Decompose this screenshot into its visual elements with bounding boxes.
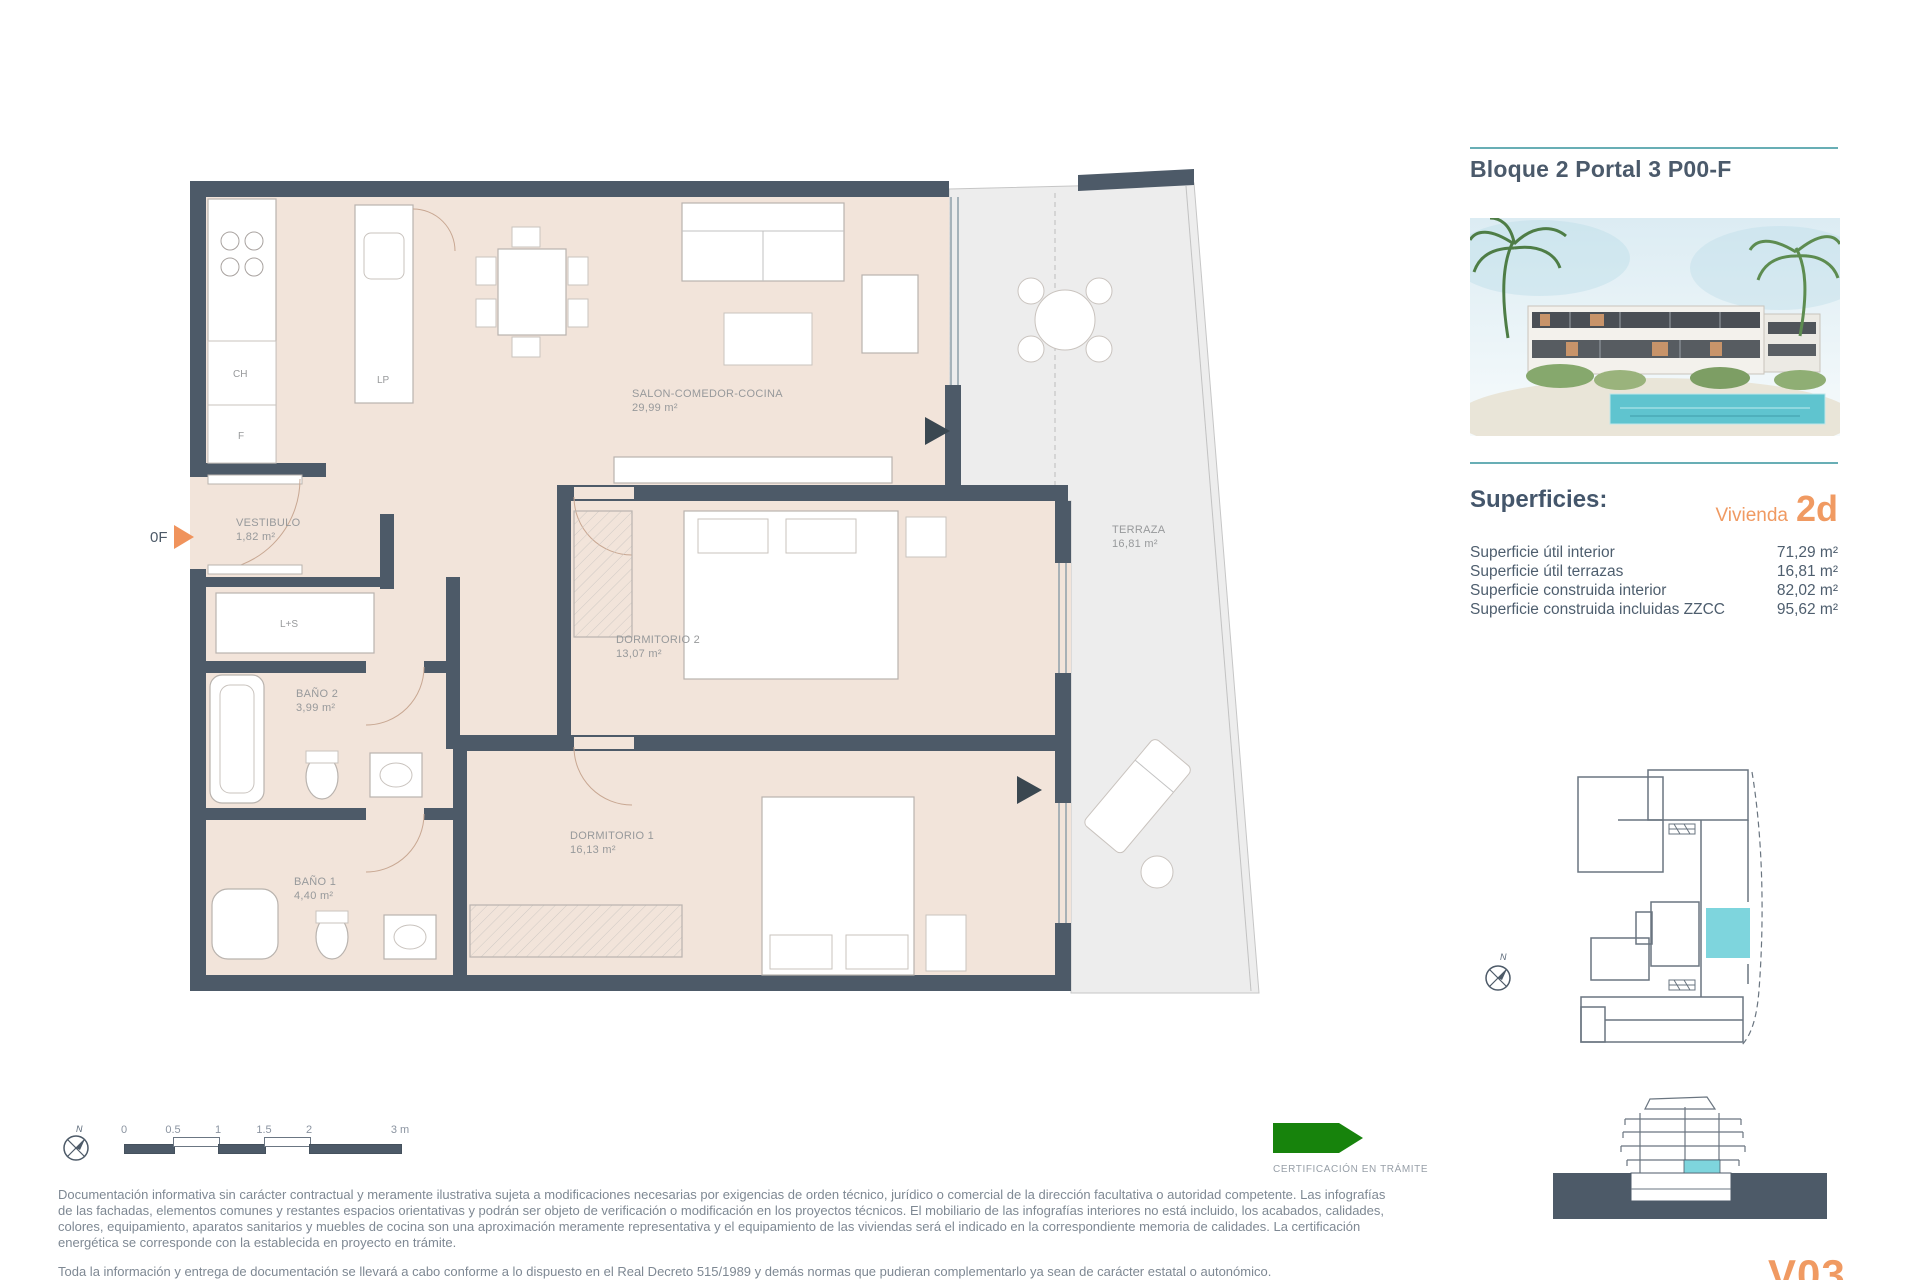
scale-tick: 1.5 bbox=[256, 1124, 271, 1136]
room-area-bath1: 4,40 m² bbox=[294, 890, 333, 902]
superficies-row: Superficie construida interior 82,02 m² bbox=[1470, 581, 1838, 600]
legal-paragraph-1: Documentación informativa sin carácter c… bbox=[58, 1187, 1403, 1251]
sup-value: 95,62 m² bbox=[1777, 600, 1838, 619]
room-label-bath1: BAÑO 1 bbox=[294, 875, 336, 888]
sup-label: Superficie útil interior bbox=[1470, 543, 1615, 562]
brand-logo: V03 bbox=[1768, 1251, 1846, 1280]
vivienda-label: Vivienda bbox=[1715, 505, 1788, 526]
floor-plan-drawing: CH F LP bbox=[150, 145, 1270, 1025]
kitchen-label-lp: LP bbox=[377, 375, 390, 386]
room-label-vestibulo: VESTIBULO bbox=[236, 517, 301, 529]
superficies-row: Superficie construida incluidas ZZCC 95,… bbox=[1470, 600, 1838, 619]
sup-label: Superficie útil terrazas bbox=[1470, 562, 1623, 581]
section-unit-highlight bbox=[1684, 1160, 1720, 1173]
closet-label: L+S bbox=[280, 619, 298, 630]
north-label: N bbox=[1500, 952, 1507, 962]
section-drawing bbox=[1545, 1085, 1835, 1260]
sup-value: 82,02 m² bbox=[1777, 581, 1838, 600]
scale-tick: 0 bbox=[121, 1124, 127, 1136]
room-area-terraza: 16,81 m² bbox=[1112, 538, 1158, 550]
kitchen-label-f: F bbox=[238, 431, 244, 442]
scale-tick: 2 bbox=[306, 1124, 312, 1136]
superficies-header: Superficies: Vivienda2d bbox=[1470, 486, 1838, 514]
north-label: N bbox=[76, 1124, 83, 1134]
legal-paragraph-2: Toda la información y entrega de documen… bbox=[58, 1264, 1403, 1279]
scale-segment bbox=[218, 1144, 266, 1154]
certification-arrow-icon bbox=[1273, 1123, 1365, 1153]
room-area-vestibulo: 1,82 m² bbox=[236, 531, 275, 543]
locator-unit-highlight bbox=[1706, 908, 1750, 958]
scale-segment bbox=[309, 1144, 402, 1154]
room-area-dorm1: 16,13 m² bbox=[570, 844, 616, 856]
superficies-row: Superficie útil terrazas 16,81 m² bbox=[1470, 562, 1838, 581]
superficies-heading: Superficies: bbox=[1470, 486, 1607, 514]
title-rule bbox=[1470, 147, 1838, 149]
sup-value: 16,81 m² bbox=[1777, 562, 1838, 581]
vivienda-code: 2d bbox=[1796, 488, 1838, 529]
scale-tick: 3 m bbox=[391, 1124, 409, 1136]
scale-segment bbox=[173, 1137, 220, 1147]
building bbox=[1528, 306, 1820, 374]
sup-label: Superficie construida interior bbox=[1470, 581, 1666, 600]
kitchen-label-ch: CH bbox=[233, 369, 247, 380]
room-label-salon: SALON-COMEDOR-COCINA bbox=[632, 388, 783, 400]
certification-label: CERTIFICACIÓN EN TRÁMITE bbox=[1273, 1164, 1453, 1175]
render-illustration bbox=[1470, 218, 1840, 436]
scale-segment bbox=[124, 1144, 175, 1154]
vivienda-badge: Vivienda2d bbox=[1715, 488, 1838, 530]
room-label-bath2: BAÑO 2 bbox=[296, 687, 338, 700]
locator-plan bbox=[1556, 752, 1886, 1052]
superficies-rule bbox=[1470, 462, 1838, 464]
scale-tick: 1 bbox=[215, 1124, 221, 1136]
entrance-marker: 0F bbox=[150, 525, 194, 549]
hall-closet: L+S bbox=[216, 593, 374, 653]
floor-plan: CH F LP bbox=[150, 145, 1270, 1025]
hero-render bbox=[1470, 218, 1840, 436]
room-area-dorm2: 13,07 m² bbox=[616, 648, 662, 660]
scale-segment bbox=[264, 1137, 311, 1147]
building-locator bbox=[1556, 752, 1886, 1057]
room-area-salon: 29,99 m² bbox=[632, 402, 678, 414]
superficies-table: Superficie útil interior 71,29 m² Superf… bbox=[1470, 543, 1838, 619]
page-title: Bloque 2 Portal 3 P00-F bbox=[1470, 156, 1850, 183]
compass-icon: N bbox=[60, 1122, 100, 1168]
room-label-dorm1: DORMITORIO 1 bbox=[570, 830, 654, 842]
pool bbox=[1610, 394, 1825, 424]
superficies-row: Superficie útil interior 71,29 m² bbox=[1470, 543, 1838, 562]
scale-bar: N 0 0.5 1 1.5 2 3 m bbox=[60, 1116, 440, 1166]
building-section bbox=[1545, 1085, 1835, 1265]
sup-label: Superficie construida incluidas ZZCC bbox=[1470, 600, 1725, 619]
sup-value: 71,29 m² bbox=[1777, 543, 1838, 562]
entrance-label: 0F bbox=[150, 529, 168, 546]
locator-compass: N bbox=[1480, 950, 1520, 1001]
floorplan-sheet: CH F LP bbox=[0, 0, 1920, 1280]
room-area-bath2: 3,99 m² bbox=[296, 702, 335, 714]
certification-block: CERTIFICACIÓN EN TRÁMITE bbox=[1273, 1123, 1453, 1175]
room-label-terraza: TERRAZA bbox=[1112, 524, 1166, 536]
compass-icon: N bbox=[1480, 950, 1520, 996]
room-label-dorm2: DORMITORIO 2 bbox=[616, 634, 700, 646]
scale-tick: 0.5 bbox=[165, 1124, 180, 1136]
